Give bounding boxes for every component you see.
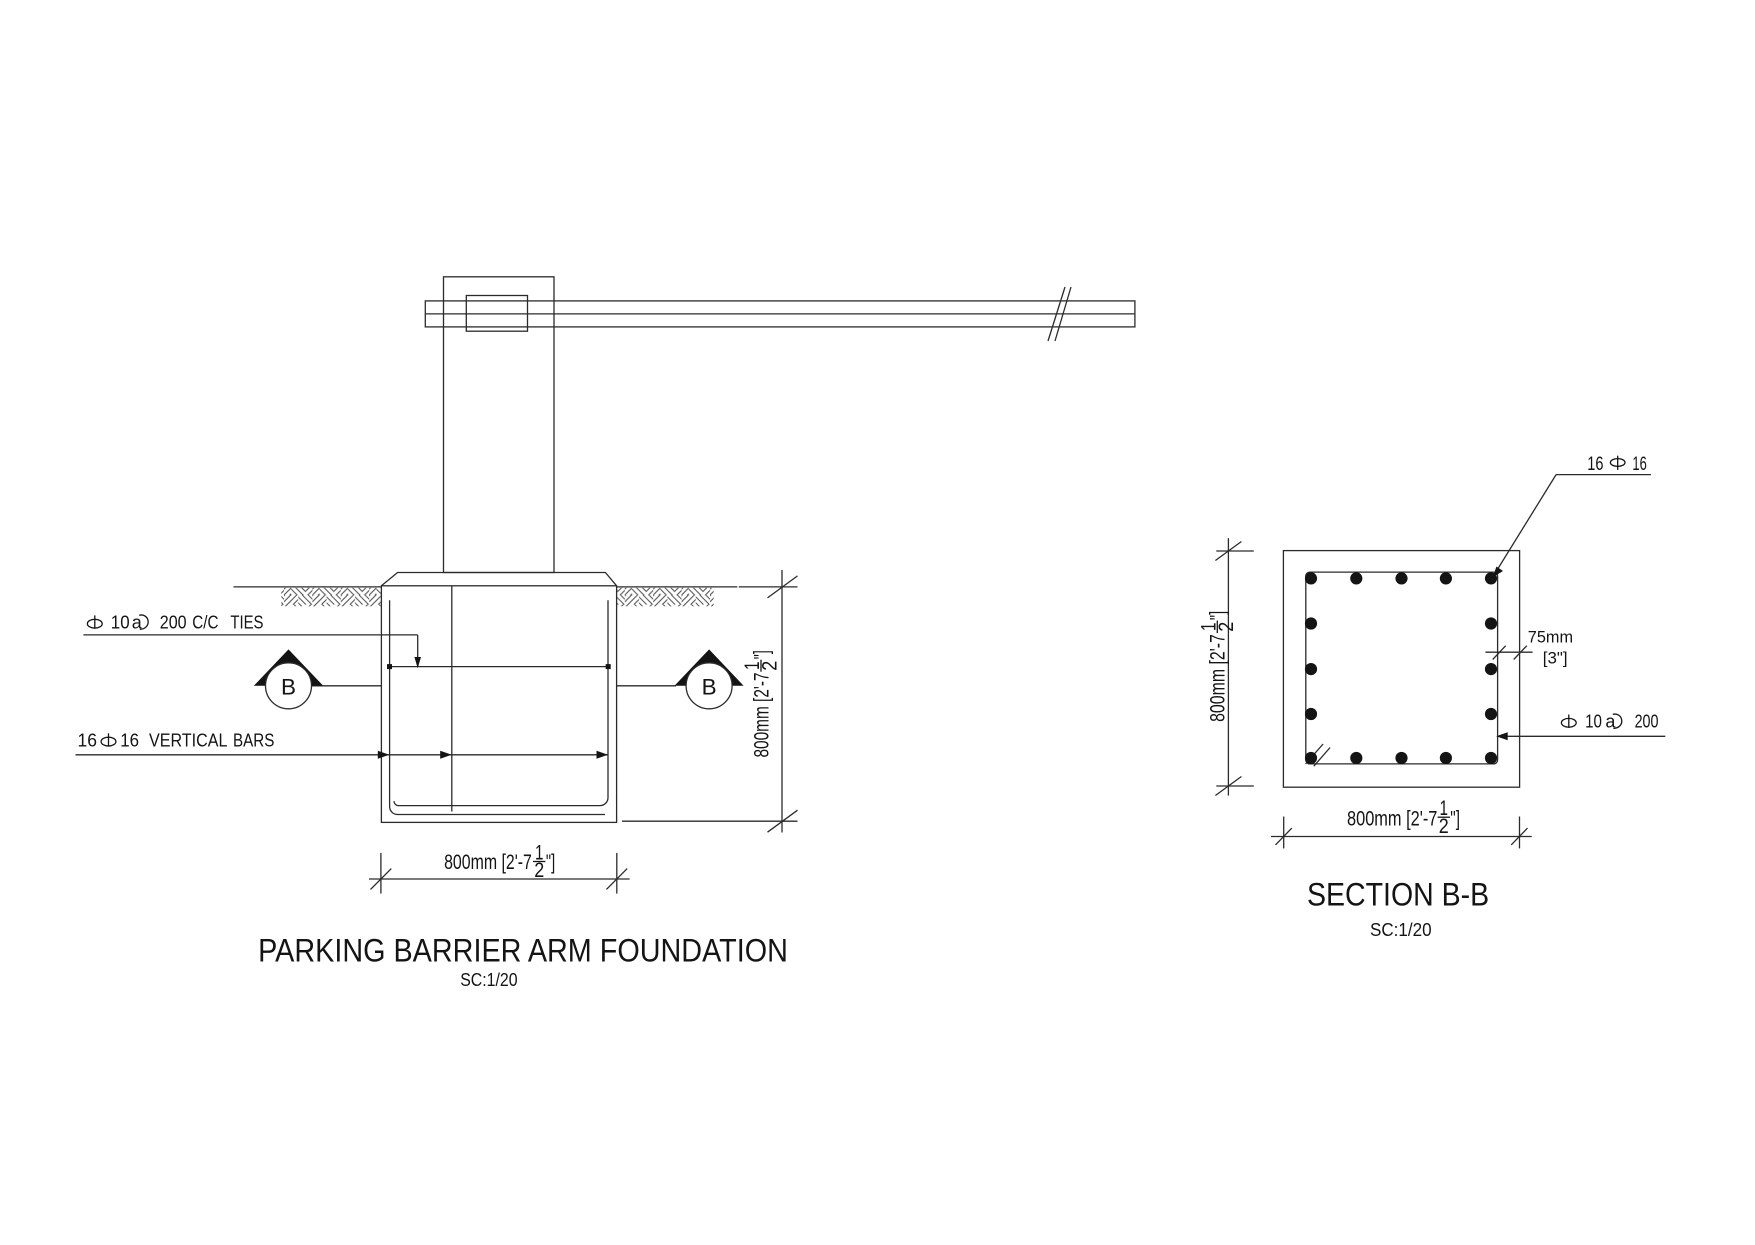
svg-text:B: B (281, 675, 296, 700)
svg-text:a: a (1605, 712, 1616, 732)
svg-text:"]: "] (1450, 808, 1460, 831)
svg-text:"]: "] (750, 650, 773, 659)
svg-text:800mm [2'-7: 800mm [2'-7 (1207, 634, 1230, 722)
svg-text:200: 200 (1635, 712, 1659, 732)
svg-text:"]: "] (546, 851, 555, 874)
svg-text:16: 16 (78, 730, 98, 750)
svg-text:16: 16 (120, 730, 139, 750)
svg-text:SECTION B-B: SECTION B-B (1307, 876, 1489, 912)
svg-text:a: a (132, 612, 143, 632)
svg-text:10: 10 (1585, 712, 1602, 732)
svg-text:10: 10 (111, 612, 130, 632)
svg-text:B: B (702, 675, 717, 700)
svg-text:"]: "] (1207, 611, 1230, 620)
svg-text:C/C: C/C (192, 612, 218, 632)
svg-text:2: 2 (534, 859, 544, 882)
svg-text:2: 2 (1439, 815, 1449, 838)
svg-text:BARS: BARS (233, 730, 274, 750)
svg-text:800mm [2'-7: 800mm [2'-7 (444, 851, 532, 874)
svg-text:800mm [2'-7: 800mm [2'-7 (750, 673, 773, 758)
svg-text:SC:1/20: SC:1/20 (460, 970, 517, 990)
svg-text:16: 16 (1632, 454, 1646, 475)
svg-text:800mm [2'-7: 800mm [2'-7 (1347, 808, 1437, 831)
svg-text:2: 2 (1215, 622, 1238, 632)
svg-text:[3"]: [3"] (1543, 648, 1568, 667)
svg-text:200: 200 (160, 612, 187, 632)
svg-text:TIES: TIES (230, 612, 263, 632)
svg-text:2: 2 (759, 661, 782, 671)
svg-text:75mm: 75mm (1528, 628, 1573, 647)
svg-text:16: 16 (1587, 454, 1603, 475)
svg-text:PARKING BARRIER ARM FOUNDATION: PARKING BARRIER ARM FOUNDATION (258, 932, 788, 968)
svg-text:VERTICAL: VERTICAL (149, 730, 227, 750)
svg-text:SC:1/20: SC:1/20 (1370, 920, 1432, 940)
